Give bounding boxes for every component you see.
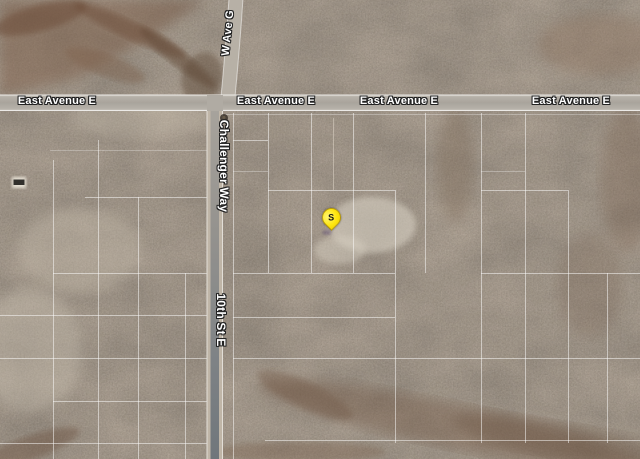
building [12, 177, 26, 188]
marker-label: S [328, 213, 334, 222]
satellite-imagery [0, 0, 640, 459]
map-canvas[interactable]: East Avenue E East Avenue E East Avenue … [0, 0, 640, 459]
road-challenger-way [207, 95, 224, 459]
road-east-avenue-e [0, 95, 640, 112]
road-north-stub [228, 0, 236, 97]
